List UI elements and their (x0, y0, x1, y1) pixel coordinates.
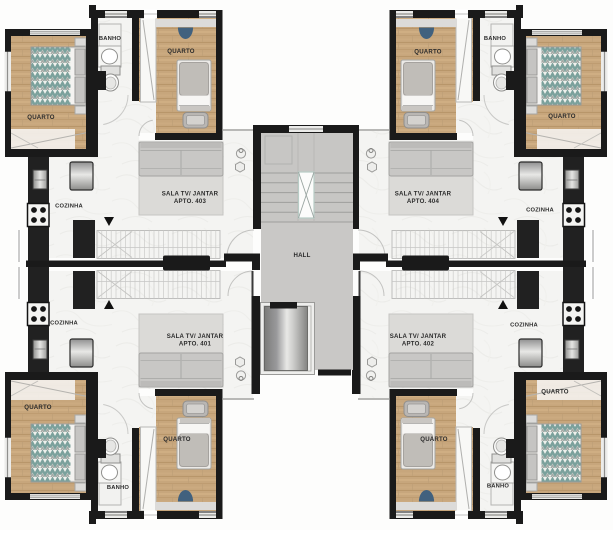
svg-text:BANHO: BANHO (484, 36, 507, 42)
svg-text:APTO. 402: APTO. 402 (402, 341, 435, 348)
svg-text:SALA TV/ JANTAR: SALA TV/ JANTAR (390, 333, 447, 340)
svg-text:SALA TV/ JANTAR: SALA TV/ JANTAR (167, 333, 224, 340)
svg-text:QUARTO: QUARTO (27, 114, 55, 121)
svg-text:QUARTO: QUARTO (541, 389, 569, 396)
svg-text:BANHO: BANHO (99, 36, 122, 42)
svg-text:HALL: HALL (293, 252, 310, 259)
svg-text:BANHO: BANHO (487, 484, 510, 490)
svg-text:QUARTO: QUARTO (24, 404, 52, 411)
svg-text:QUARTO: QUARTO (420, 436, 448, 443)
svg-text:QUARTO: QUARTO (167, 48, 195, 55)
svg-text:APTO. 403: APTO. 403 (174, 198, 207, 205)
svg-text:QUARTO: QUARTO (163, 436, 191, 443)
svg-text:QUARTO: QUARTO (414, 49, 442, 56)
svg-text:COZINHA: COZINHA (510, 323, 538, 329)
svg-text:SALA TV/ JANTAR: SALA TV/ JANTAR (395, 191, 452, 198)
svg-text:APTO. 404: APTO. 404 (407, 198, 440, 205)
svg-text:BANHO: BANHO (107, 485, 130, 491)
svg-text:QUARTO: QUARTO (548, 113, 576, 120)
svg-text:COZINHA: COZINHA (50, 321, 78, 327)
svg-text:SALA TV/ JANTAR: SALA TV/ JANTAR (162, 191, 219, 198)
svg-text:COZINHA: COZINHA (526, 208, 554, 214)
svg-text:COZINHA: COZINHA (55, 204, 83, 210)
svg-text:APTO. 401: APTO. 401 (179, 341, 212, 348)
